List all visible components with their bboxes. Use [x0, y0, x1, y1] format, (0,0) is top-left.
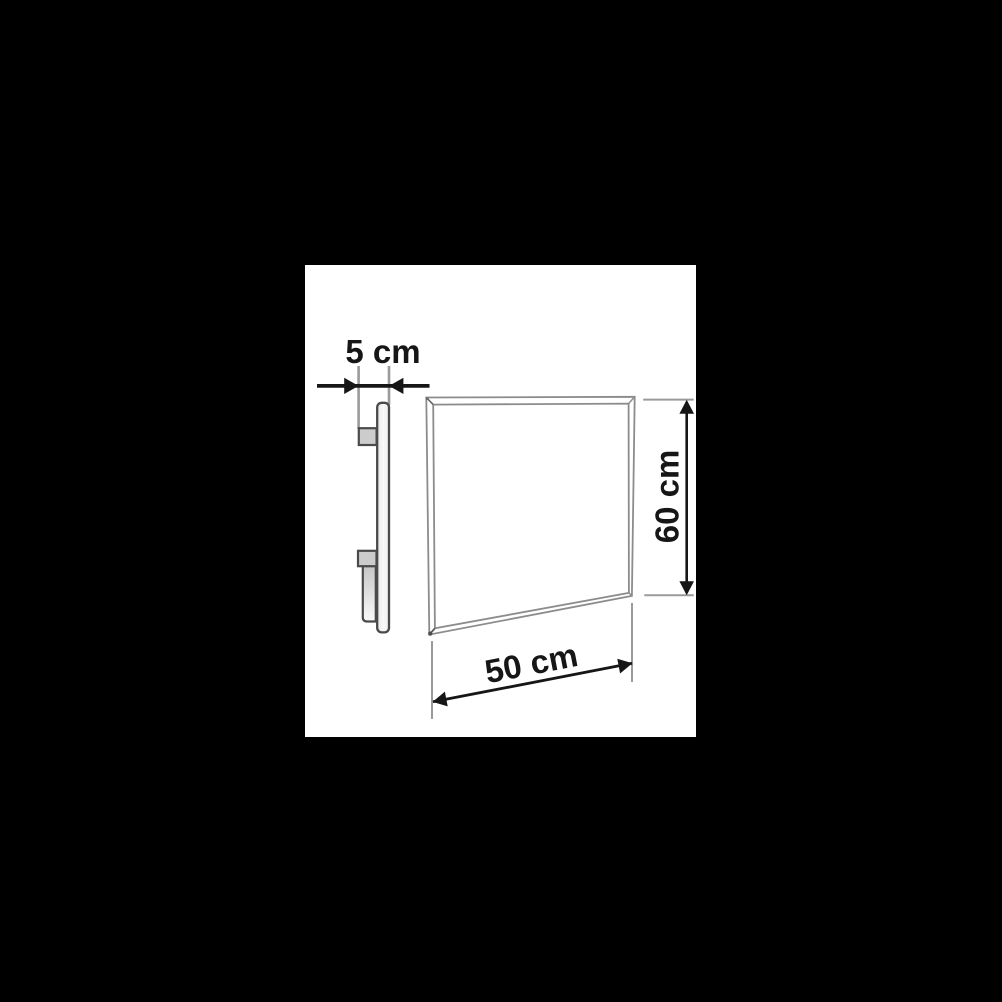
- svg-text:60 cm: 60 cm: [649, 450, 686, 544]
- svg-text:5 cm: 5 cm: [345, 333, 420, 370]
